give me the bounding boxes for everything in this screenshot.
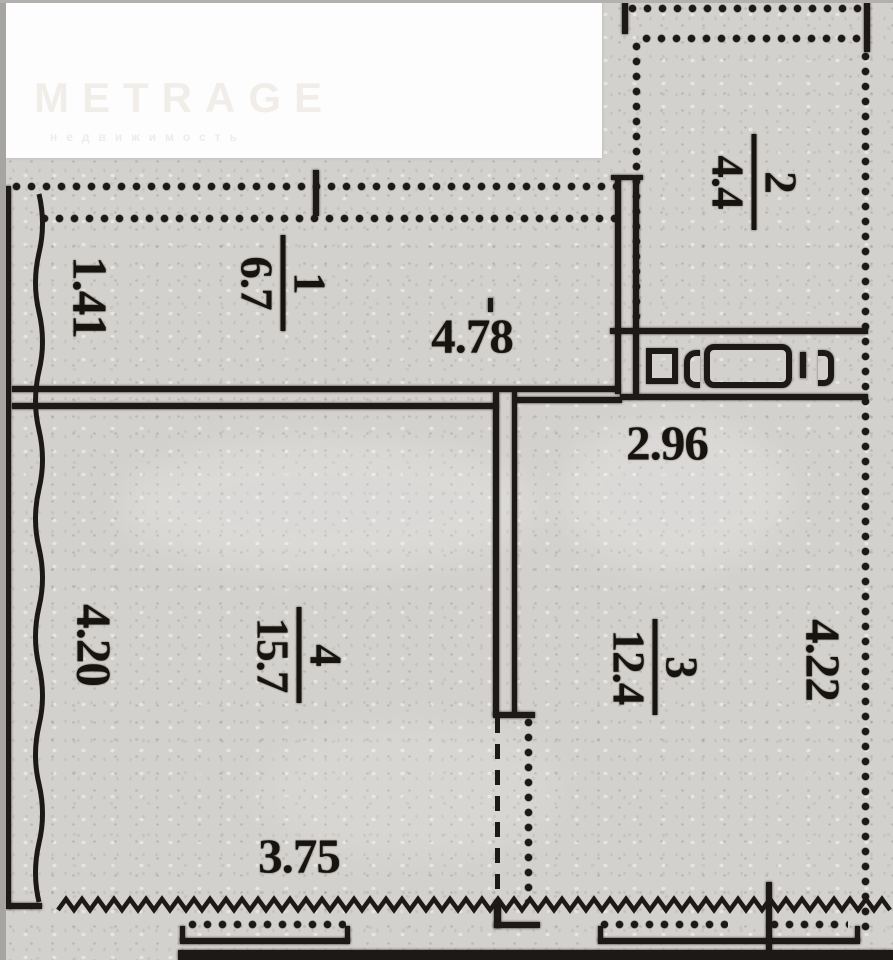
wall-dotted-room1-top-inner <box>40 214 620 223</box>
photo-bottom-band <box>178 950 893 960</box>
door-frame-bottom-horizontal <box>494 922 540 928</box>
room-4-area: 15.7 <box>251 618 295 693</box>
window-mark-icon <box>818 350 834 386</box>
room-1-area: 6.7 <box>235 256 279 309</box>
wall-outer-left <box>6 186 11 908</box>
window-sill-icon <box>704 344 792 388</box>
balcony-rail-tick <box>180 926 185 942</box>
dim-hall-width: 2.96 <box>626 415 708 472</box>
wall-corner-bottom-left <box>6 903 42 909</box>
room-2-label: 2 4.4 <box>706 134 803 230</box>
dimension-tick-top <box>313 170 319 216</box>
room-3-area: 12.4 <box>607 630 651 705</box>
wall-interior-vertical-b <box>512 392 517 716</box>
window-block-icon <box>646 348 678 384</box>
balcony-bottom-wall <box>610 328 868 334</box>
wall-dotted-bottom-1 <box>188 920 346 929</box>
room-1-label: 1 6.7 <box>235 235 332 331</box>
door-opening-dotted-right <box>524 718 533 902</box>
dim-room1-depth: 1.41 <box>62 256 119 338</box>
room-3-number: 3 <box>660 656 704 678</box>
wall-interior-vertical-a <box>493 392 499 716</box>
balcony-rail-right <box>598 938 860 944</box>
wall-dotted-balcony-top-inner <box>642 34 862 43</box>
wall-dotted-balcony-left <box>632 42 641 330</box>
room-4-number: 4 <box>304 644 348 666</box>
photo-edge-left <box>0 0 6 960</box>
room-4-label: 4 15.7 <box>251 607 348 703</box>
door-opening-dashed-left <box>495 718 500 902</box>
wall-wavy-left-inner <box>36 194 43 902</box>
room-3-label: 3 12.4 <box>607 619 704 715</box>
watermark-blob <box>120 440 540 570</box>
balcony-rail-tick <box>855 926 860 942</box>
wall-mid-horizontal-top <box>12 386 620 392</box>
room-1-number: 1 <box>288 272 332 294</box>
window-arc-icon <box>684 350 700 388</box>
photo-edge-top <box>0 0 893 3</box>
dim-room1-width: 4.78 <box>431 308 513 365</box>
wall-mid-horizontal-bottom-left <box>12 403 498 409</box>
room-2-number: 2 <box>759 171 803 193</box>
wall-mid-horizontal-bottom-right <box>514 397 622 403</box>
dim-room3-depth: 4.22 <box>795 619 852 701</box>
balcony-rail-left <box>180 938 350 944</box>
wall-column-left <box>615 178 621 394</box>
brand-tagline: недвижимость <box>50 130 246 144</box>
logo-box: METRAGE недвижимость <box>4 2 602 158</box>
brand-name: METRAGE <box>34 74 335 122</box>
wall-tick-bottom <box>766 882 772 954</box>
dim-room4-width: 3.75 <box>258 828 340 885</box>
wall-dotted-outer-right <box>861 52 870 934</box>
window-sill-line <box>620 394 868 400</box>
wall-dotted-bottom-3 <box>770 920 848 929</box>
dim-room4-depth: 4.20 <box>66 604 123 686</box>
floor-plan-canvas: METRAGE недвижимость 1 6.7 2 4.4 3 12.4 … <box>0 0 893 960</box>
wall-dotted-bottom-2 <box>600 920 728 929</box>
window-mark-icon <box>800 352 806 378</box>
wall-dotted-room1-top-outer <box>12 182 618 191</box>
room-2-area: 4.4 <box>706 155 750 208</box>
wall-dotted-balcony-top-outer <box>628 4 866 13</box>
